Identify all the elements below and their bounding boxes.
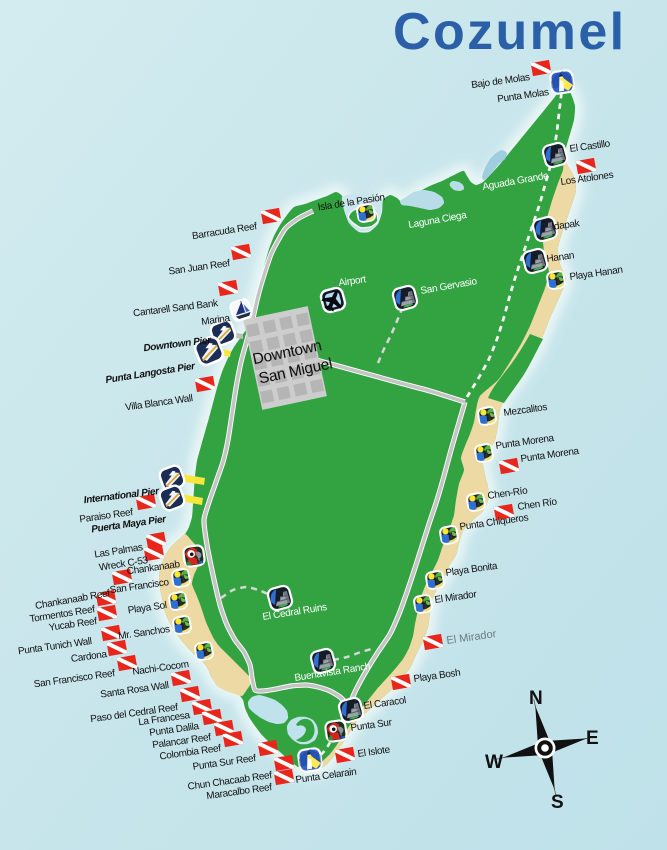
svg-text:S: S xyxy=(551,792,564,813)
svg-text:N: N xyxy=(529,688,543,709)
svg-text:W: W xyxy=(485,752,503,773)
svg-text:Cozumel: Cozumel xyxy=(393,3,626,61)
svg-text:E: E xyxy=(586,728,599,749)
